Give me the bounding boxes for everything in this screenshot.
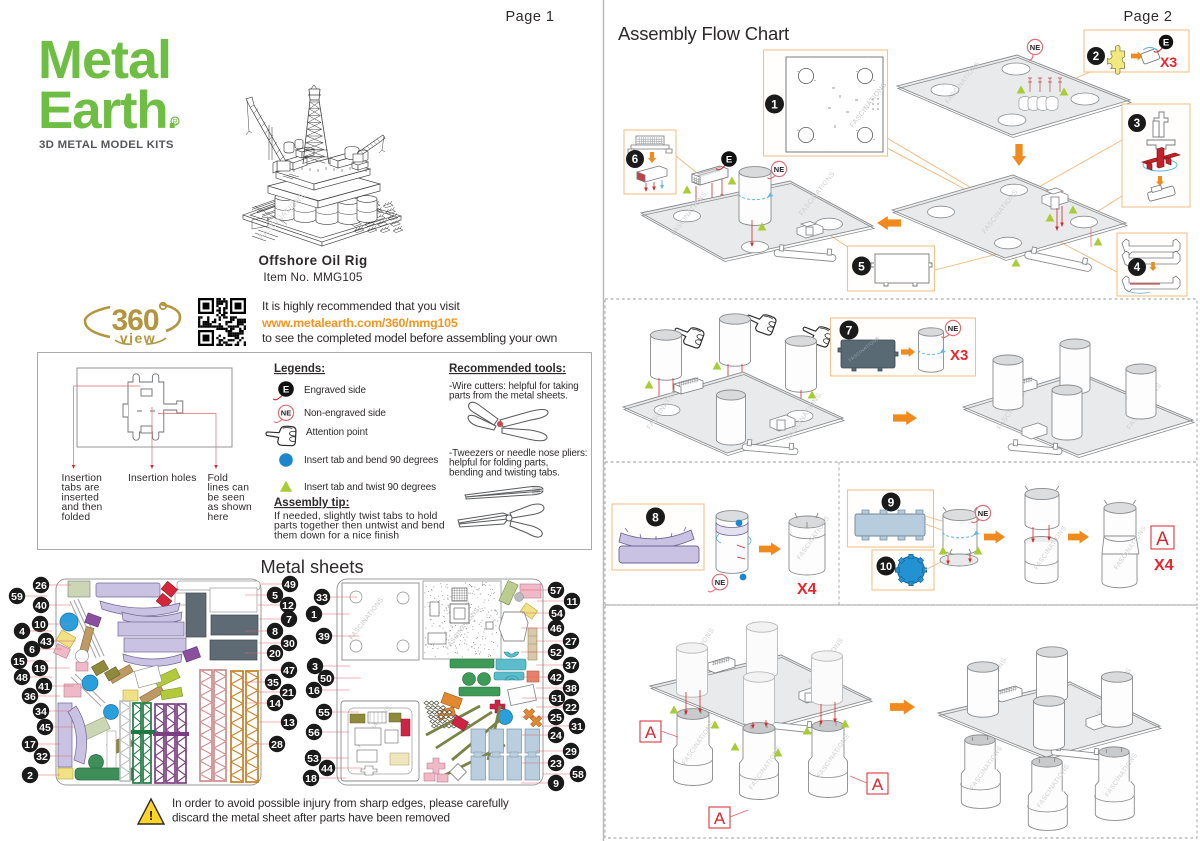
svg-text:44: 44 [321,763,333,775]
svg-text:A: A [645,723,657,742]
svg-text:9: 9 [553,778,559,790]
svg-text:36: 36 [24,691,36,703]
svg-text:Earth.: Earth. [38,81,176,140]
svg-text:9: 9 [888,495,895,509]
svg-text:4: 4 [19,626,25,638]
svg-text:6: 6 [29,644,35,656]
svg-text:59: 59 [11,591,23,603]
svg-text:E: E [283,384,289,395]
svg-text:16: 16 [308,685,320,697]
svg-text:24: 24 [550,730,562,742]
svg-text:48: 48 [16,672,28,684]
svg-text:49: 49 [284,579,296,591]
svg-text:33: 33 [316,592,328,604]
svg-text:6: 6 [632,154,638,166]
svg-text:37: 37 [565,660,577,672]
svg-text:Legends:: Legends: [274,363,325,375]
svg-text:18: 18 [305,773,317,785]
svg-text:19: 19 [34,663,46,675]
svg-text:35: 35 [267,677,279,689]
svg-text:here: here [208,512,229,523]
svg-text:2: 2 [27,770,33,782]
svg-text:30: 30 [283,638,295,650]
svg-text:It is highly recommended that: It is highly recommended that you visit [262,299,460,313]
svg-text:26: 26 [35,580,47,592]
svg-text:34: 34 [35,706,47,718]
svg-text:X4: X4 [797,581,817,598]
svg-text:3: 3 [312,661,318,673]
svg-text:47: 47 [283,665,295,677]
svg-text:12: 12 [282,600,294,612]
svg-text:40: 40 [35,600,47,612]
svg-text:38: 38 [565,683,577,695]
svg-text:32: 32 [36,751,48,763]
svg-text:5: 5 [272,590,278,602]
svg-text:45: 45 [39,722,51,734]
svg-text:www.metalearth.com/360/mmg105: www.metalearth.com/360/mmg105 [261,316,458,330]
svg-text:42: 42 [550,672,562,684]
svg-text:E: E [1163,37,1169,48]
svg-text:20: 20 [269,648,281,660]
svg-text:3: 3 [1134,118,1140,130]
svg-text:5: 5 [858,259,865,273]
svg-text:1: 1 [771,97,778,111]
svg-text:29: 29 [565,746,577,758]
svg-text:parts from the metal sheets.: parts from the metal sheets. [449,391,568,402]
svg-text:A: A [1156,529,1169,550]
svg-text:Insertion holes: Insertion holes [128,473,196,484]
svg-text:X3: X3 [950,347,968,364]
svg-text:discard the metal sheet after: discard the metal sheet after parts have… [172,811,450,825]
svg-text:22: 22 [565,702,577,714]
svg-text:17: 17 [24,739,36,751]
svg-text:Non-engraved side: Non-engraved side [304,408,386,419]
svg-text:Metal sheets: Metal sheets [260,557,363,577]
svg-text:57: 57 [550,585,562,597]
svg-text:to see the completed model bef: to see the completed model before assemb… [262,331,557,345]
svg-text:13: 13 [283,717,295,729]
svg-text:58: 58 [572,769,584,781]
svg-text:folded: folded [62,512,91,523]
svg-text:Page 1: Page 1 [506,9,555,25]
svg-text:NE: NE [774,165,784,174]
svg-text:10: 10 [880,561,892,573]
svg-text:8: 8 [272,626,278,638]
svg-text:In order to avoid possible inj: In order to avoid possible injury from s… [172,796,509,810]
svg-text:Attention point: Attention point [306,427,368,438]
svg-text:14: 14 [269,698,281,710]
svg-text:41: 41 [38,681,50,693]
svg-text:Assembly tip:: Assembly tip: [274,497,349,509]
svg-text:21: 21 [282,687,294,699]
svg-text:50: 50 [320,673,332,685]
svg-text:X4: X4 [1154,557,1174,574]
svg-text:27: 27 [565,636,577,648]
svg-text:23: 23 [550,758,562,770]
svg-text:56: 56 [308,727,320,739]
svg-text:4: 4 [1134,262,1141,274]
svg-text:Assembly Flow Chart: Assembly Flow Chart [618,23,789,44]
svg-text:7: 7 [846,323,853,337]
svg-text:Item No. MMG105: Item No. MMG105 [263,270,363,284]
svg-text:A: A [714,809,726,828]
svg-text:15: 15 [13,656,25,668]
svg-text:Offshore Oil Rig: Offshore Oil Rig [258,253,367,268]
svg-text:55: 55 [318,707,330,719]
svg-text:X3: X3 [1160,54,1177,70]
svg-text:Recommended tools:: Recommended tools: [449,363,566,375]
svg-text:Insert tab and bend 90 degrees: Insert tab and bend 90 degrees [304,455,438,466]
svg-text:Insert tab and twist 90 degree: Insert tab and twist 90 degrees [304,482,436,493]
svg-text:11: 11 [566,596,577,608]
svg-text:10: 10 [34,619,46,631]
svg-text:E: E [726,154,732,165]
svg-text:31: 31 [571,721,583,733]
svg-text:NE: NE [948,324,958,333]
svg-text:them down for a nice finish: them down for a nice finish [274,530,399,541]
svg-text:52: 52 [550,647,562,659]
svg-text:28: 28 [271,739,283,751]
svg-text:NE: NE [281,409,291,418]
svg-text:51: 51 [551,693,563,705]
svg-text:!: ! [149,808,153,823]
svg-text:7: 7 [286,614,292,626]
svg-text:1: 1 [311,609,317,621]
svg-text:Page 2: Page 2 [1124,9,1173,25]
svg-text:R: R [172,119,177,126]
svg-text:Engraved side: Engraved side [304,385,366,396]
svg-text:39: 39 [318,631,330,643]
svg-text:A: A [872,775,884,794]
svg-text:NE: NE [715,578,725,587]
svg-text:54: 54 [551,608,563,620]
svg-text:8: 8 [652,510,659,524]
svg-text:NE: NE [978,509,988,518]
svg-text:3D METAL MODEL KITS: 3D METAL MODEL KITS [39,139,174,151]
svg-text:46: 46 [550,623,562,635]
svg-text:53: 53 [307,753,319,765]
svg-text:bending and twisting tabs.: bending and twisting tabs. [449,467,560,478]
svg-text:25: 25 [550,712,562,724]
svg-text:2: 2 [1093,51,1099,63]
svg-text:43: 43 [40,636,52,648]
svg-text:NE: NE [1030,43,1040,52]
